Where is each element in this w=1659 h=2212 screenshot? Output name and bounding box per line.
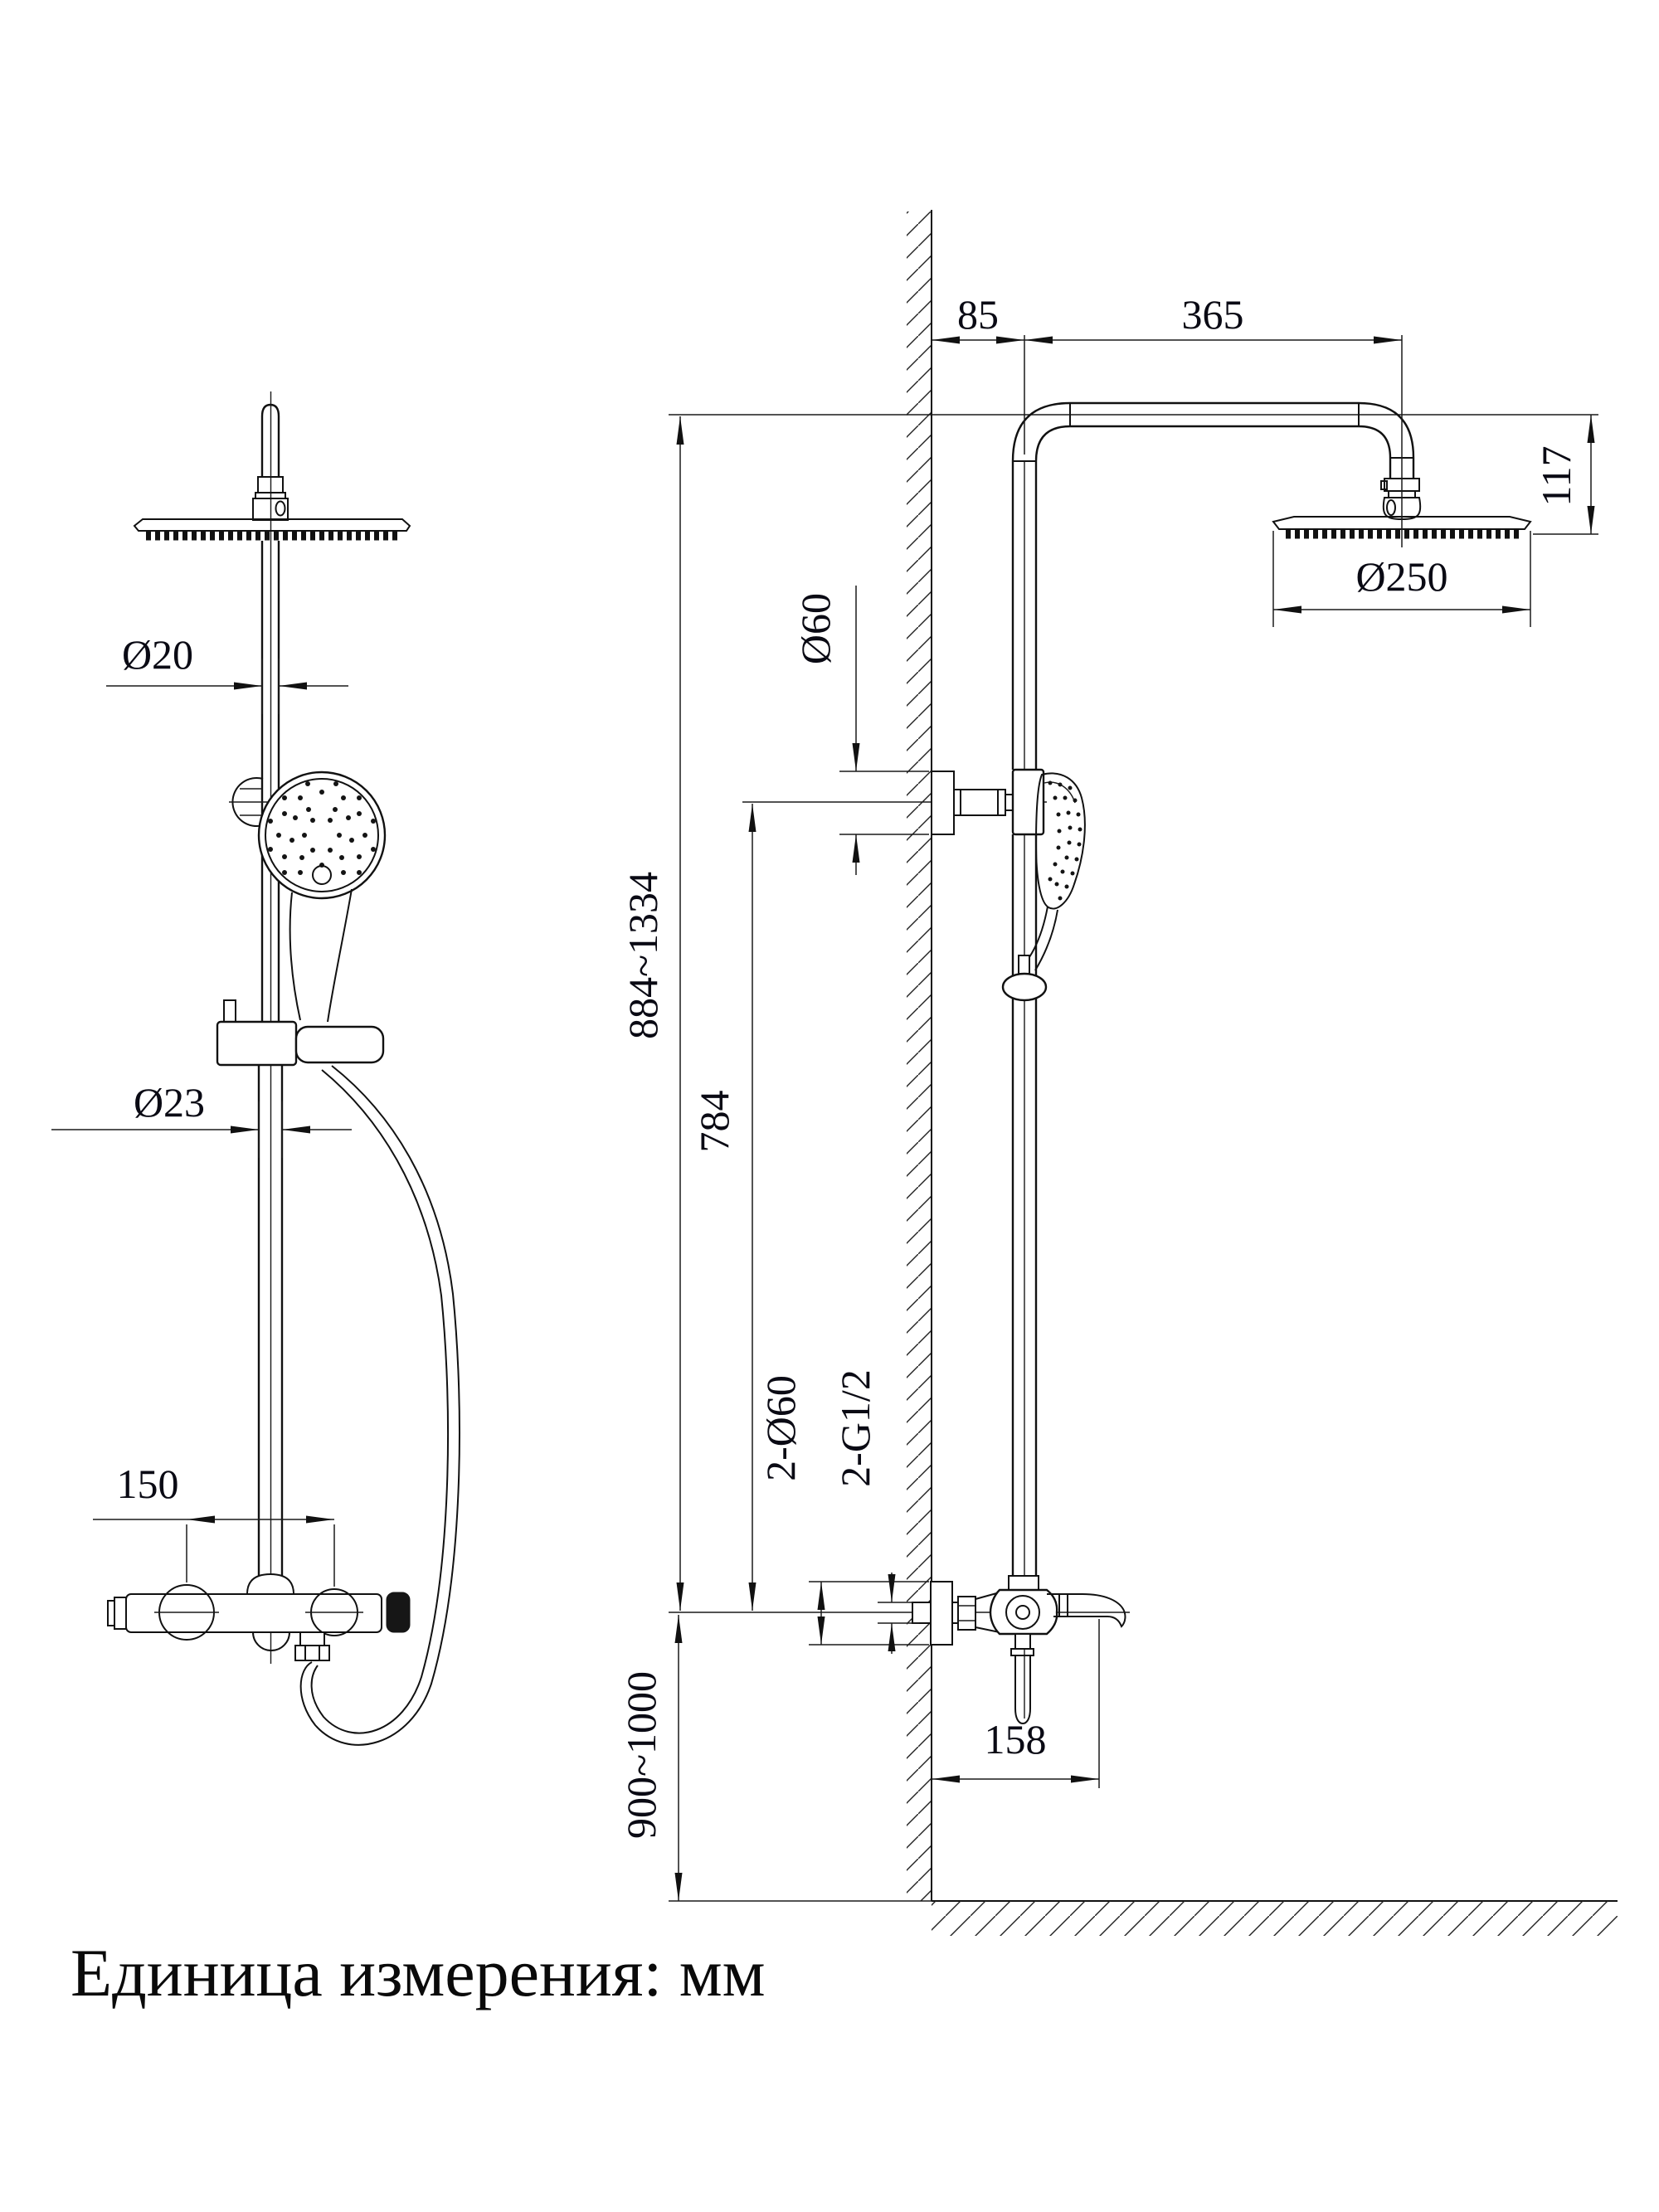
wall-bracket-side	[932, 770, 1044, 834]
slider-bracket-front	[217, 1000, 383, 1065]
dim-thread-size: 2-G1/2	[832, 1369, 919, 1654]
riser-and-arm	[1013, 403, 1413, 1576]
outlet-hex-nut	[295, 1646, 329, 1660]
head-disc-front	[134, 519, 410, 531]
unit-note: Единица измерения: мм	[71, 1935, 766, 2010]
mixer-side	[912, 1576, 1125, 1723]
hand-shower-nozzle-dots	[1048, 781, 1082, 901]
dim-wall-to-riser: 85	[932, 291, 1024, 455]
dim-riser-to-head-label: 365	[1182, 291, 1244, 338]
dim-spout-reach-label: 158	[985, 1716, 1047, 1762]
front-view	[108, 391, 460, 1745]
riser-boss	[247, 1574, 294, 1594]
dim-bracket-to-mixer-label: 784	[691, 1091, 737, 1153]
dim-head-dia-label: Ø250	[1355, 553, 1447, 600]
dim-pipe-upper-dia-label: Ø20	[122, 631, 193, 678]
slider-knob-front	[224, 1000, 236, 1022]
slider-ring-side	[1003, 974, 1046, 1000]
dim-bracket-dia-label: Ø60	[792, 593, 839, 664]
dim-head-height: 117	[1533, 415, 1598, 534]
dim-valve-centers-label: 150	[117, 1461, 179, 1507]
dim-pipe-lower-dia-label: Ø23	[134, 1079, 205, 1125]
dim-escutcheon-dia-label: 2-Ø60	[757, 1375, 804, 1481]
outlet-nipple	[300, 1632, 324, 1646]
mixer-handle-front	[387, 1592, 410, 1632]
dim-column-height: 884~1334	[620, 416, 680, 1611]
dim-column-height-label: 884~1334	[620, 872, 666, 1039]
dim-bracket-to-mixer: 784	[691, 804, 752, 1611]
dim-pipe-upper-dia: Ø20	[106, 631, 348, 714]
mixer-front	[108, 1574, 410, 1660]
dim-thread-size-label: 2-G1/2	[832, 1369, 878, 1487]
dim-wall-to-riser-label: 85	[957, 291, 999, 338]
wall-hatch	[907, 211, 932, 1901]
dim-mixer-mount-height: 900~1000	[618, 1615, 679, 1901]
dim-head-height-label: 117	[1533, 445, 1579, 506]
dim-valve-centers: 150	[93, 1461, 334, 1587]
mixer-body-front	[126, 1594, 382, 1632]
hand-shower-handle-front	[290, 892, 300, 1020]
dim-mixer-mount-height-label: 900~1000	[618, 1671, 664, 1839]
dim-pipe-lower-dia: Ø23	[51, 1079, 352, 1158]
technical-drawing: 85 365 117 Ø250 Ø60	[0, 0, 1659, 2212]
mixer-lever-side	[1011, 1634, 1034, 1723]
dim-riser-to-head: 365	[1024, 291, 1402, 547]
floor-hatch	[932, 1901, 1618, 1936]
side-view	[669, 210, 1618, 1936]
slider-knob-side	[1019, 955, 1029, 974]
